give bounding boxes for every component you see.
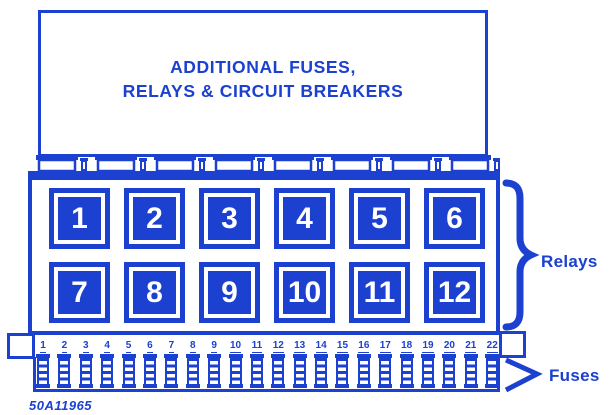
fuse-icon (293, 354, 307, 388)
fuse-item: 6 (143, 341, 157, 388)
fuse-icon (485, 354, 499, 388)
relay-number: 12 (438, 276, 471, 310)
left-mount-tab (7, 333, 35, 359)
relay-number: 1 (71, 202, 88, 236)
fuse-item: 19 (421, 341, 435, 388)
relay-cell: 10 (274, 262, 335, 323)
relay-cell: 3 (199, 188, 260, 249)
relay-number: 2 (146, 202, 163, 236)
relay-cell: 6 (424, 188, 485, 249)
fuse-icon (164, 354, 178, 388)
relay-number: 5 (371, 202, 388, 236)
relay-number: 9 (221, 276, 238, 310)
fuse-number: 4 (104, 341, 110, 353)
fuse-number: 14 (316, 341, 327, 353)
fuse-icon (143, 354, 157, 388)
fuse-number: 6 (147, 341, 153, 353)
fuse-icon (421, 354, 435, 388)
relay-number: 4 (296, 202, 313, 236)
fuse-icon (400, 354, 414, 388)
fuse-icon (250, 354, 264, 388)
fuse-number: 10 (230, 341, 241, 353)
fuse-number: 18 (401, 341, 412, 353)
fuse-item: 8 (186, 341, 200, 388)
title-line-1: ADDITIONAL FUSES, (41, 55, 485, 79)
relay-cell: 2 (124, 188, 185, 249)
fuse-item: 11 (250, 341, 264, 388)
fuse-item: 2 (57, 341, 71, 388)
fuse-number: 13 (294, 341, 305, 353)
fuse-item: 12 (271, 341, 285, 388)
relay-number: 11 (364, 276, 396, 310)
fuse-number: 9 (211, 341, 217, 353)
fuse-number: 22 (487, 341, 498, 353)
relay-number: 3 (221, 202, 238, 236)
right-mount-tab (499, 331, 526, 358)
relay-number: 8 (146, 276, 163, 310)
fuse-item: 20 (442, 341, 456, 388)
fuse-number: 21 (465, 341, 476, 353)
fuse-strip: 1 2 3 4 5 6 7 8 9 10 11 12 13 14 15 16 1… (36, 341, 499, 388)
fuse-icon (314, 354, 328, 388)
fuse-icon (229, 354, 243, 388)
fuse-item: 9 (207, 341, 221, 388)
fuse-item: 15 (335, 341, 349, 388)
fuse-number: 15 (337, 341, 348, 353)
connector-clips-icon (28, 152, 500, 178)
part-number: 50A11965 (29, 398, 92, 413)
fuse-number: 11 (252, 341, 263, 353)
fuse-icon (442, 354, 456, 388)
relay-cell: 12 (424, 262, 485, 323)
fuse-item: 4 (100, 341, 114, 388)
relay-number: 7 (71, 276, 88, 310)
fuse-icon (122, 354, 136, 388)
fuse-number: 3 (83, 341, 89, 353)
fuse-number: 20 (444, 341, 455, 353)
fuse-icon (378, 354, 392, 388)
fuse-number: 2 (62, 341, 68, 353)
relay-cell: 11 (349, 262, 410, 323)
relay-number: 6 (446, 202, 463, 236)
title-box: ADDITIONAL FUSES, RELAYS & CIRCUIT BREAK… (38, 10, 488, 157)
fuse-icon (100, 354, 114, 388)
relays-label: Relays (541, 252, 598, 272)
fuse-item: 3 (79, 341, 93, 388)
fuse-item: 17 (378, 341, 392, 388)
fuse-box-diagram: ADDITIONAL FUSES, RELAYS & CIRCUIT BREAK… (0, 0, 612, 415)
fuse-item: 21 (464, 341, 478, 388)
relay-cell: 9 (199, 262, 260, 323)
relay-box: 1 2 3 4 5 6 7 8 9 10 11 12 (28, 176, 500, 335)
fuse-item: 10 (229, 341, 243, 388)
fuse-icon (57, 354, 71, 388)
fuses-label: Fuses (549, 366, 600, 386)
fuse-number: 7 (169, 341, 175, 353)
fuse-icon (207, 354, 221, 388)
relay-cell: 1 (49, 188, 110, 249)
fuse-number: 1 (40, 341, 46, 353)
fuse-icon (335, 354, 349, 388)
fuse-icon (271, 354, 285, 388)
fuse-icon (464, 354, 478, 388)
fuse-icon (36, 354, 50, 388)
fuse-number: 5 (126, 341, 132, 353)
fuse-icon (357, 354, 371, 388)
relay-cell: 8 (124, 262, 185, 323)
fuse-item: 16 (357, 341, 371, 388)
fuse-number: 16 (358, 341, 369, 353)
fuse-icon (79, 354, 93, 388)
fuse-item: 18 (400, 341, 414, 388)
fuses-arrow-icon (503, 357, 543, 393)
fuse-number: 17 (380, 341, 391, 353)
fuse-item: 22 (485, 341, 499, 388)
fuse-item: 7 (164, 341, 178, 388)
fuse-number: 19 (422, 341, 433, 353)
fuse-item: 1 (36, 341, 50, 388)
title-line-2: RELAYS & CIRCUIT BREAKERS (41, 79, 485, 103)
relay-number: 10 (288, 276, 321, 310)
fuse-item: 14 (314, 341, 328, 388)
fuse-icon (186, 354, 200, 388)
fuse-number: 8 (190, 341, 196, 353)
relays-brace-icon (498, 178, 542, 332)
relay-cell: 4 (274, 188, 335, 249)
fuse-item: 5 (122, 341, 136, 388)
fuse-item: 13 (293, 341, 307, 388)
fuse-number: 12 (273, 341, 284, 353)
relay-cell: 5 (349, 188, 410, 249)
fuse-strip-baseline (33, 389, 500, 392)
relay-cell: 7 (49, 262, 110, 323)
